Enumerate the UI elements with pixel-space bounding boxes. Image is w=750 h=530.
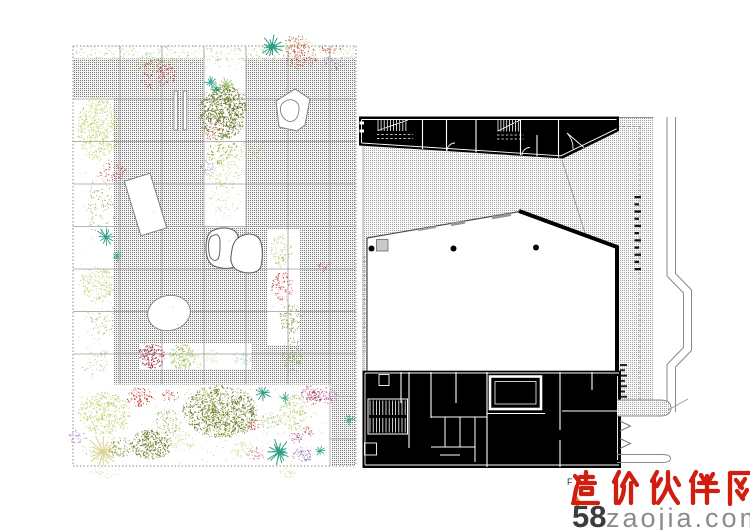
svg-text:58: 58 bbox=[572, 499, 606, 530]
svg-text:zaojia.com: zaojia.com bbox=[606, 503, 750, 530]
svg-text:F: F bbox=[567, 477, 573, 487]
